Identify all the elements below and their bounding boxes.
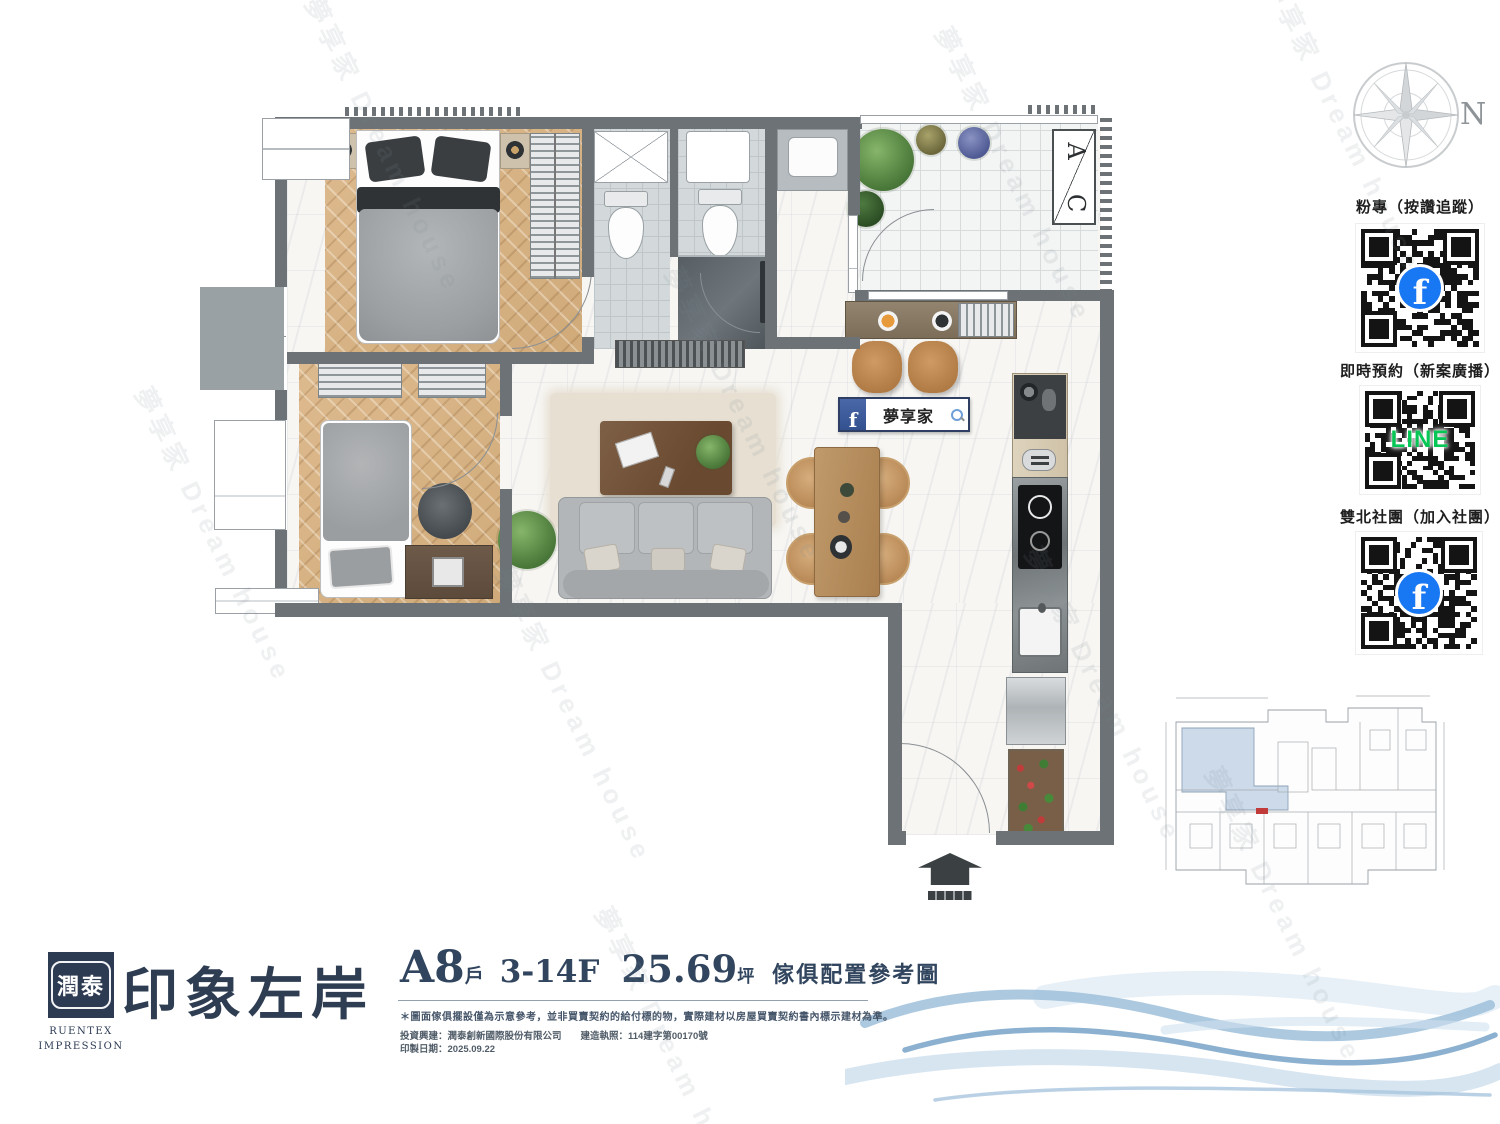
ac-ledge [200,287,284,390]
planter-box [1008,749,1064,839]
toilet-tank [604,191,648,207]
hatch-strip [345,107,520,116]
pillow [430,135,491,182]
qr-finder [1365,391,1401,427]
ac-letter-bottom: C [1062,185,1090,221]
divider-line [398,1000,868,1001]
qr-finder [1361,537,1397,573]
pot [1020,383,1038,401]
plate [838,511,850,523]
duvet [359,209,498,341]
sliding-door [848,215,858,293]
floorplan-poster: { "watermark": { "text": "夢享家 Dream hous… [0,0,1500,1124]
wall-segment [582,117,594,277]
sofa-back [563,570,769,598]
bowl [830,535,852,559]
oven-slots [1031,456,1049,459]
wave-strokes [845,935,1500,1124]
seat-cushion [638,502,694,554]
window-box [262,118,350,180]
oven-slots [1031,462,1049,465]
duvet [323,423,409,541]
qr-finder [1439,391,1475,427]
apartment-floorplan: A C [200,105,1120,905]
sidebar-label-fanpage: 粉專（按讚追蹤） [1310,196,1500,217]
wall-segment [996,831,1114,845]
wall-segment [888,831,906,845]
developer-logo-characters: 潤泰 [51,961,111,1009]
pillow [364,135,425,182]
developer-name-line2: IMPRESSION [24,1039,138,1054]
master-bed [356,130,500,344]
wall-segment [765,117,777,349]
sidebar-label-community: 雙北社團（加入社團） [1310,506,1500,527]
magnifier-icon [951,409,963,421]
balcony-plant [958,127,990,159]
tv-console [615,340,745,368]
compass-rose: N [1348,55,1498,180]
facebook-icon: f [1396,264,1444,312]
balcony-plant [852,129,914,191]
unit-area: 25.69 [621,947,737,991]
hatch-strip [1028,105,1098,114]
ac-unit: A C [1052,129,1096,225]
bar-bowl [878,311,898,331]
layout-caption: 傢俱配置參考圖 [772,962,940,987]
storage-cabinet [594,131,668,183]
desk-chair [418,483,472,539]
wall-segment [287,352,594,364]
facebook-search-tag: f 夢享家 [838,397,970,432]
area-unit: 坪 [737,967,754,986]
qr-finder [1361,311,1397,347]
disclaimer-text: ＊圖面傢俱擺設僅為示意參考，並非買賣契約的給付標的物，實際建材以房屋買賣契約書內… [400,1008,894,1023]
wardrobe-divider [554,133,556,279]
watercolor-waves [845,935,1500,1124]
facebook-icon: f [840,399,866,430]
single-bed [320,420,412,598]
unit-suffix: 戶 [465,966,484,987]
project-title: 印象左岸 [122,950,374,1031]
ac-letter-top: A [1062,133,1090,169]
stainless-cart [1006,677,1066,745]
burner [1028,495,1052,519]
qr-code-line: LINE [1360,386,1480,494]
pillow [328,545,395,589]
speaker-right-icon [506,141,524,159]
desk-laptop [432,557,464,587]
developer-name-line1: RUENTEX [24,1024,138,1039]
bar-end-cabinet [958,303,1014,337]
wall-segment [1100,290,1114,845]
balcony-top-window [860,115,1098,124]
qr-finder [1443,229,1479,265]
plate [840,483,854,497]
bar-window [868,291,1008,300]
faucet [1038,603,1046,613]
credit-line-date: 印製日期：2025.09.22 [400,1041,495,1055]
facebook-search-text: 夢享家 [866,403,951,427]
key-plan-drawing [1160,690,1450,900]
wall-segment [275,390,287,420]
pot [1042,389,1056,411]
wall-segment [670,117,678,257]
cooktop [1018,485,1062,569]
wall-segment [500,489,512,617]
compass-north-label: N [1460,97,1486,132]
balcony-plant [916,125,946,155]
burner [1030,531,1050,551]
building-key-plan [1160,690,1450,905]
hatch-strip [1100,115,1112,293]
credit-line-builder: 投資興建：潤泰創新國際股份有限公司 建造執照：114建字第00170號 [400,1028,708,1042]
kitchen-sink [1018,607,1062,657]
qr-finder [1441,537,1477,573]
window-bay [214,420,286,530]
basin-sink [788,137,838,177]
oven [1022,449,1056,471]
wall-segment [848,117,860,215]
entrance-arrow-icon [918,853,982,885]
entrance-arrow-bar [928,891,972,900]
developer-logo: 潤泰 [48,952,114,1018]
line-icon: LINE [1391,426,1450,454]
bar-cup [932,311,952,331]
facebook-icon: f [1395,569,1443,617]
qr-finder [1361,229,1397,265]
kitchen-appliances [1014,375,1066,439]
qr-code-fanpage: f [1356,224,1484,352]
qr-code-community: f [1356,532,1482,654]
unit-number: A8 [400,942,465,993]
bath2-sink [686,131,750,183]
wall-segment [888,603,902,843]
qr-finder [1365,453,1401,489]
bar-stool [908,341,958,393]
sidebar-label-booking: 即時預約（新案廣播） [1310,360,1500,381]
sofa [558,497,772,599]
throw-pillow [651,548,685,572]
developer-name: RUENTEX IMPRESSION [24,1024,138,1054]
wall-segment [500,364,512,416]
wall-segment [765,337,860,349]
unit-spec: A8戶3-14F25.69坪傢俱配置參考圖 [400,942,940,993]
shower-glass [678,255,765,257]
toilet-tank [698,189,742,205]
floor-range: 3-14F [500,954,600,990]
wall-segment [275,603,900,617]
table-plant [696,435,730,469]
qr-finder [1361,613,1397,649]
